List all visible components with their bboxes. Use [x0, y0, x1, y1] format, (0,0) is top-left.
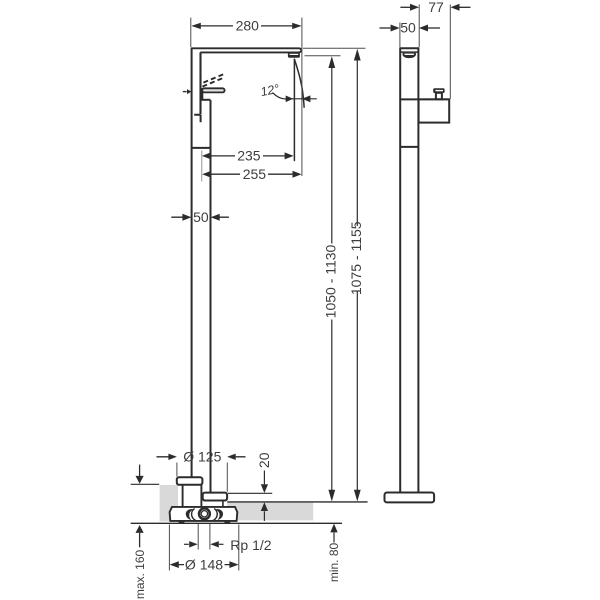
- svg-text:Ø 148: Ø 148: [185, 556, 223, 572]
- svg-text:1075 - 1155: 1075 - 1155: [348, 221, 364, 295]
- svg-text:50: 50: [400, 20, 416, 36]
- svg-text:255: 255: [243, 166, 267, 182]
- svg-text:Rp 1/2: Rp 1/2: [230, 537, 271, 553]
- svg-text:235: 235: [237, 148, 261, 164]
- svg-text:77: 77: [428, 0, 444, 15]
- svg-text:max. 160: max. 160: [133, 549, 147, 599]
- svg-text:min. 80: min. 80: [327, 543, 341, 583]
- svg-text:280: 280: [236, 18, 260, 34]
- svg-text:1050 - 1130: 1050 - 1130: [323, 244, 339, 318]
- svg-text:Ø 125: Ø 125: [183, 449, 221, 465]
- svg-text:20: 20: [256, 452, 272, 468]
- svg-text:50: 50: [193, 209, 209, 225]
